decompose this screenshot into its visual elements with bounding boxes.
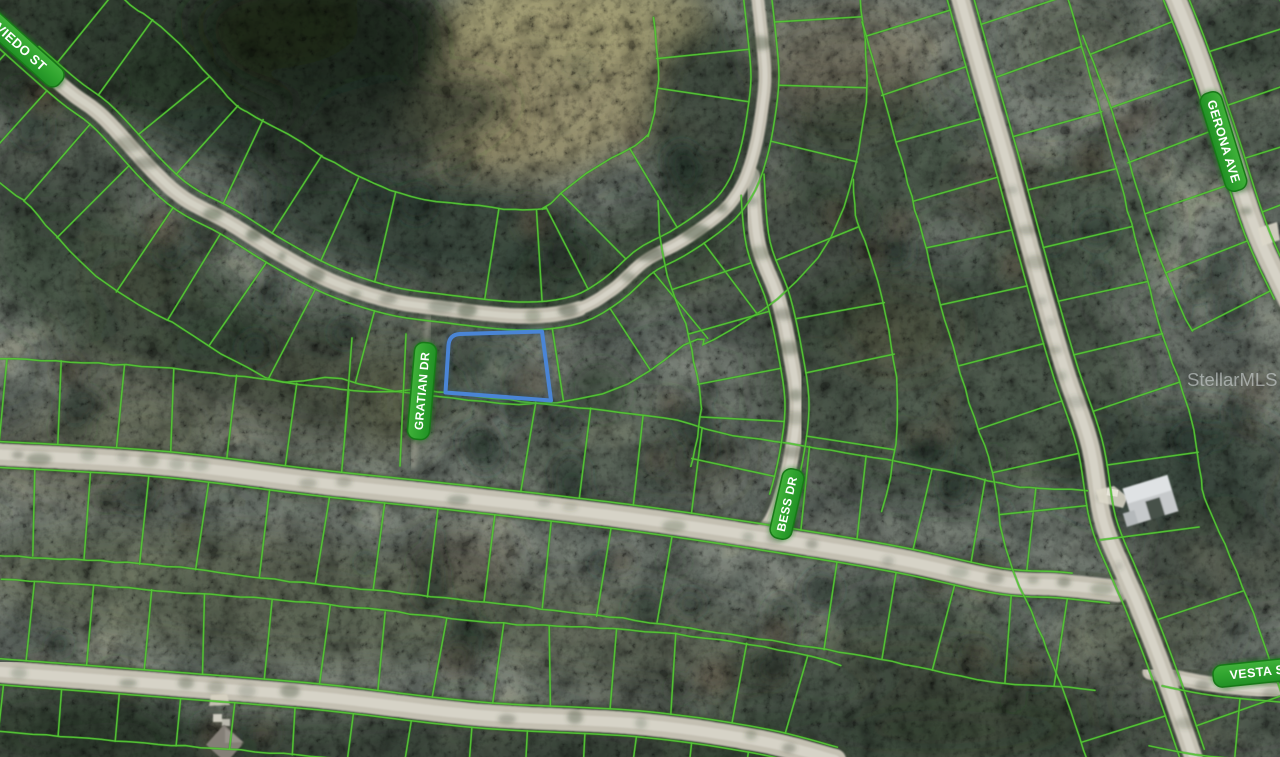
svg-text:StellarMLS: StellarMLS bbox=[1187, 369, 1277, 390]
